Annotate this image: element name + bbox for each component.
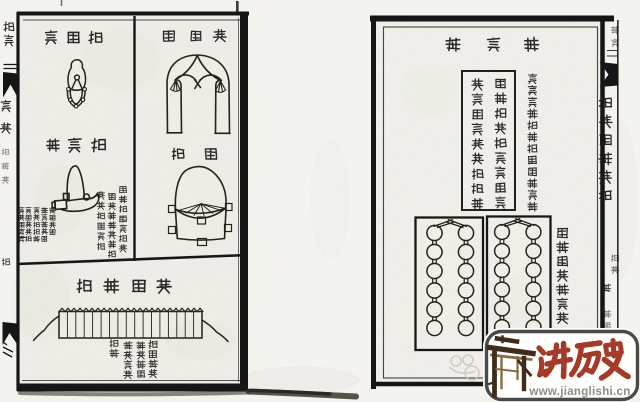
svg-text:www.jianglishi.cn: www.jianglishi.cn [528,386,630,398]
